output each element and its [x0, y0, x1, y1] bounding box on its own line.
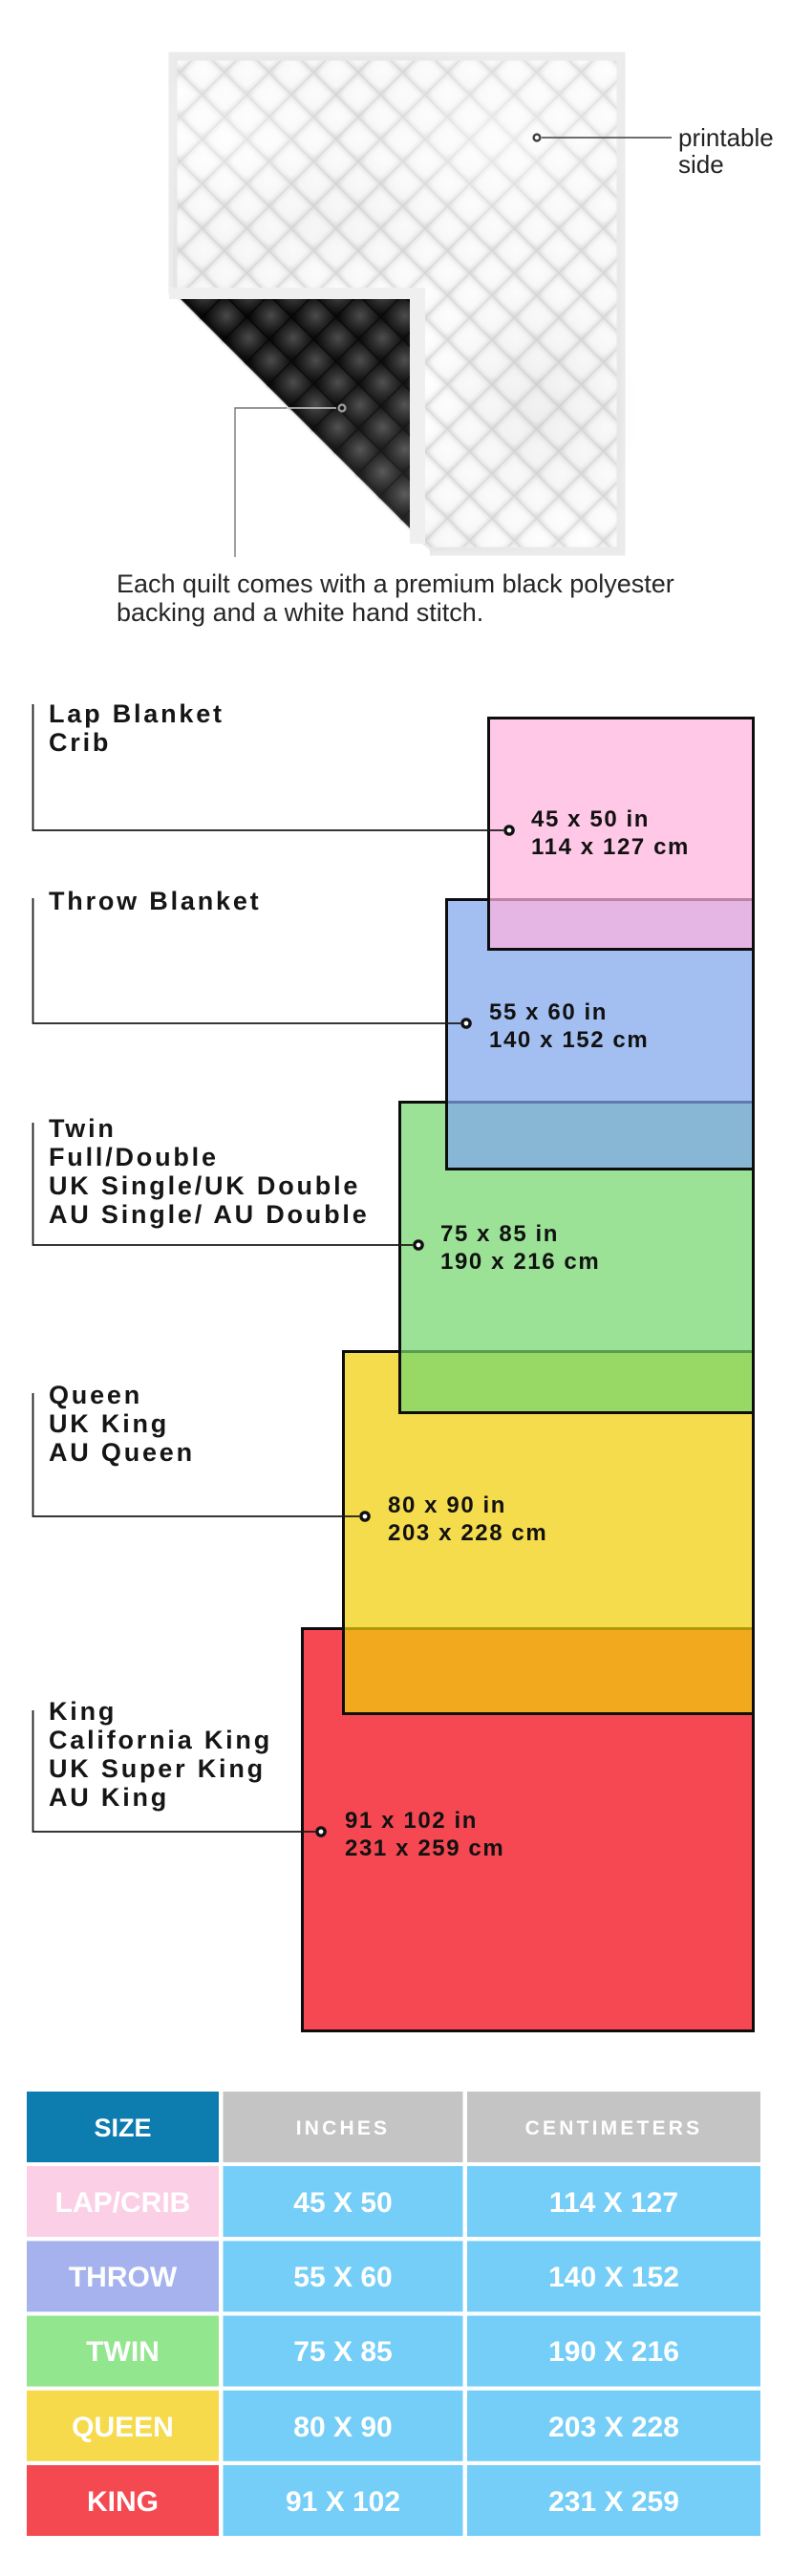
svg-text:203 x 228 cm: 203 x 228 cm	[388, 1520, 547, 1546]
svg-text:114 x 127 cm: 114 x 127 cm	[531, 834, 690, 860]
svg-text:Queen: Queen	[49, 1381, 142, 1409]
svg-text:75 X 85: 75 X 85	[293, 2336, 392, 2368]
svg-text:91 x 102 in: 91 x 102 in	[345, 1808, 478, 1834]
svg-text:75 x 85 in: 75 x 85 in	[440, 1221, 559, 1247]
svg-text:TWIN: TWIN	[86, 2336, 160, 2368]
svg-text:UK King: UK King	[49, 1409, 169, 1438]
svg-text:91 X 102: 91 X 102	[286, 2486, 400, 2518]
svg-text:Full/Double: Full/Double	[49, 1143, 219, 1171]
svg-text:Throw Blanket: Throw Blanket	[49, 887, 261, 915]
svg-text:55 X 60: 55 X 60	[293, 2262, 392, 2293]
svg-text:California King: California King	[49, 1726, 272, 1754]
svg-text:203 X 228: 203 X 228	[548, 2412, 679, 2443]
svg-text:Lap Blanket: Lap Blanket	[49, 699, 224, 728]
svg-text:45 x 50 in: 45 x 50 in	[531, 806, 650, 832]
svg-text:190 X 216: 190 X 216	[548, 2336, 679, 2368]
svg-text:AU Single/ AU Double: AU Single/ AU Double	[49, 1200, 370, 1229]
svg-text:UK Single/UK Double: UK Single/UK Double	[49, 1171, 360, 1200]
svg-text:AU Queen: AU Queen	[49, 1438, 195, 1467]
svg-text:CENTIMETERS: CENTIMETERS	[525, 2117, 703, 2139]
svg-text:INCHES: INCHES	[296, 2117, 391, 2139]
svg-text:45 X 50: 45 X 50	[293, 2187, 392, 2219]
svg-text:55 x 60 in: 55 x 60 in	[489, 999, 608, 1025]
svg-text:LAP/CRIB: LAP/CRIB	[55, 2187, 191, 2219]
svg-text:King: King	[49, 1697, 117, 1726]
svg-text:UK Super King: UK Super King	[49, 1754, 266, 1783]
svg-text:231 x 259 cm: 231 x 259 cm	[345, 1835, 504, 1861]
svg-text:QUEEN: QUEEN	[72, 2412, 174, 2443]
svg-text:side: side	[678, 150, 724, 179]
svg-text:KING: KING	[87, 2486, 159, 2518]
svg-text:80 x 90 in: 80 x 90 in	[388, 1492, 506, 1518]
svg-text:231 X 259: 231 X 259	[548, 2486, 679, 2518]
svg-text:printable: printable	[678, 123, 774, 152]
svg-text:Each quilt comes with a premiu: Each quilt comes with a premium black po…	[117, 569, 674, 598]
svg-text:Crib: Crib	[49, 728, 111, 757]
svg-text:SIZE: SIZE	[94, 2114, 151, 2142]
svg-text:80 X 90: 80 X 90	[293, 2412, 392, 2443]
svg-text:140 x 152 cm: 140 x 152 cm	[489, 1027, 649, 1053]
svg-text:THROW: THROW	[69, 2262, 178, 2293]
svg-text:190 x 216 cm: 190 x 216 cm	[440, 1249, 600, 1275]
svg-text:backing and a white hand stitc: backing and a white hand stitch.	[117, 598, 483, 627]
svg-text:114 X 127: 114 X 127	[549, 2187, 678, 2219]
svg-text:140 X 152: 140 X 152	[548, 2262, 679, 2293]
svg-text:AU King: AU King	[49, 1783, 169, 1812]
svg-text:Twin: Twin	[49, 1114, 117, 1143]
